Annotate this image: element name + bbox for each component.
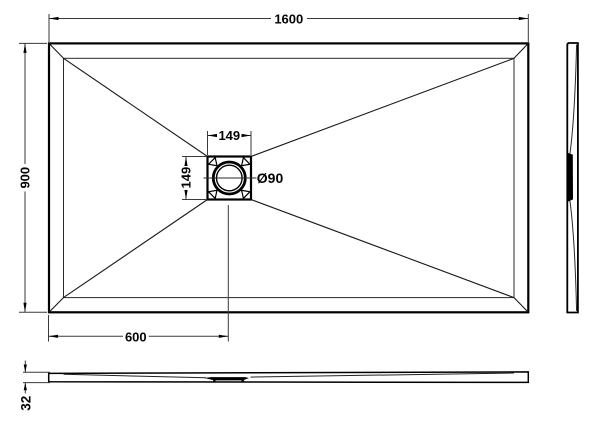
svg-text:900: 900: [18, 167, 33, 189]
svg-text:Ø90: Ø90: [257, 170, 284, 186]
svg-text:149: 149: [178, 167, 193, 189]
svg-text:600: 600: [125, 329, 147, 344]
svg-text:1600: 1600: [274, 11, 303, 26]
svg-text:149: 149: [218, 128, 240, 143]
svg-text:32: 32: [19, 396, 34, 411]
